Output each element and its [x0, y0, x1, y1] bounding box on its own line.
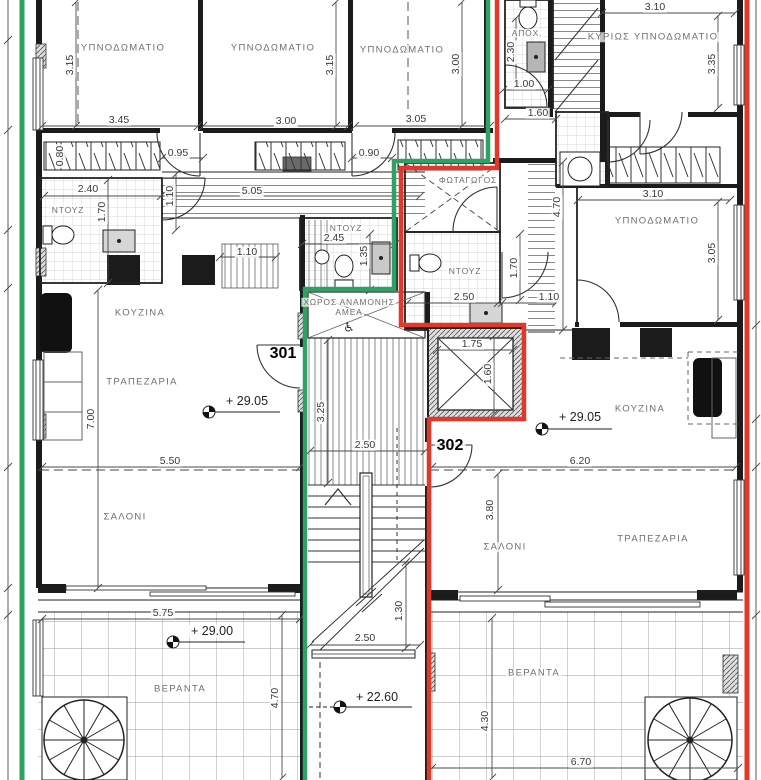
room-label-kitchen-2: ΚΟΥΖΙΝΑ — [613, 404, 667, 414]
level-label-22-60: + 22.60 — [354, 691, 400, 704]
room-label-wc: ΑΠΟΧ. — [510, 29, 544, 38]
room-label-waiting-area-amea: ΑΜΕΑ — [333, 308, 364, 317]
dim-label: 1.10 — [537, 292, 561, 303]
dim-label-vertical: 4.70 — [270, 686, 281, 710]
dim-label: 3.10 — [643, 2, 667, 13]
dim-label-vertical: 0.80 — [55, 144, 66, 168]
toilet-icon — [410, 255, 419, 271]
level-label-29-05-left: + 29.05 — [224, 395, 270, 408]
room-label-veranda-1: ΒΕΡΑΝΤΑ — [152, 684, 208, 694]
dim-label-vertical: 3.15 — [65, 53, 76, 77]
dim-label-vertical: 7.00 — [86, 407, 97, 431]
wheelchair-icon: ♿ — [343, 321, 355, 334]
room-label-shower-3: ΝΤΟΥΖ — [447, 267, 483, 276]
dim-label: 2.50 — [353, 440, 377, 451]
dim-label-vertical: 1.60 — [483, 362, 494, 386]
dim-label-vertical: 1.30 — [394, 599, 405, 623]
dim-label: 3.05 — [404, 114, 428, 125]
level-label-29-00: + 29.00 — [189, 625, 235, 638]
dim-label-vertical: 1.70 — [97, 200, 108, 224]
sink-icon — [315, 250, 329, 264]
dim-label-vertical: 4.30 — [480, 709, 491, 733]
room-label-light-well: ΦΩΤΑΓΩΓΟΣ — [437, 176, 499, 185]
dim-label: 2.50 — [353, 633, 377, 644]
dim-label: 5.75 — [151, 608, 175, 619]
dim-label: 0.90 — [357, 148, 381, 159]
room-label-bedroom-4: ΥΠΝΟΔΩΜΑΤΙΟ — [613, 216, 701, 226]
room-label-master-bedroom: ΚΥΡΙΩΣ ΥΠΝΟΔΩΜΑΤΙΟ — [586, 32, 721, 42]
toilet-icon — [335, 255, 353, 277]
level-label-29-05-right: + 29.05 — [557, 411, 603, 424]
unit-number-301: 301 — [268, 346, 299, 362]
level-marker-icon — [536, 423, 612, 435]
dim-label-vertical: 1.70 — [509, 256, 520, 280]
dim-label: 1.10 — [235, 247, 259, 258]
dim-label: 3.45 — [107, 115, 131, 126]
room-label-dining-1: ΤΡΑΠΕΖΑΡΙΑ — [104, 377, 179, 387]
dim-label: 2.45 — [322, 233, 346, 244]
dim-label-vertical: 1.35 — [359, 244, 370, 268]
toilet-icon — [43, 226, 52, 244]
floor-plan: ΥΠΝΟΔΩΜΑΤΙΟ ΥΠΝΟΔΩΜΑΤΙΟ ΥΠΝΟΔΩΜΑΤΙΟ ΚΥΡΙ… — [0, 0, 761, 780]
dim-label: 5.50 — [158, 456, 182, 467]
dim-label: 3.00 — [274, 116, 298, 127]
dim-label: 0.95 — [166, 148, 190, 159]
dim-label: 1.75 — [460, 339, 484, 350]
dim-label-vertical: 1.10 — [165, 184, 176, 208]
dim-label-vertical: 3.25 — [316, 400, 327, 424]
dim-label-vertical: 3.00 — [451, 52, 462, 76]
dim-label: 5.05 — [240, 186, 264, 197]
dim-label: 1.60 — [526, 108, 550, 119]
dim-label: 3.10 — [641, 189, 665, 200]
dim-label: 2.40 — [76, 184, 100, 195]
dim-label: 2.50 — [452, 292, 476, 303]
room-label-bedroom-3: ΥΠΝΟΔΩΜΑΤΙΟ — [358, 45, 446, 55]
room-label-bedroom-2: ΥΠΝΟΔΩΜΑΤΙΟ — [229, 43, 317, 53]
room-label-bedroom-1: ΥΠΝΟΔΩΜΑΤΙΟ — [79, 43, 167, 53]
dim-label: 1.00 — [512, 79, 536, 90]
dim-label-vertical: 3.35 — [707, 52, 718, 76]
room-label-shower-1: ΝΤΟΥΖ — [50, 206, 86, 215]
dim-label: 6.20 — [568, 456, 592, 467]
room-label-kitchen-1: ΚΟΥΖΙΝΑ — [113, 308, 167, 318]
dim-label: 6.70 — [569, 757, 593, 768]
room-label-living-2: ΣΑΛΟΝΙ — [481, 542, 528, 552]
level-marker-icon — [203, 406, 280, 418]
dim-label-vertical: 2.30 — [506, 40, 517, 64]
dim-label-vertical: 3.15 — [325, 53, 336, 77]
fridge-icon — [40, 293, 72, 353]
room-label-living-1: ΣΑΛΟΝΙ — [101, 512, 148, 522]
room-label-veranda-2: ΒΕΡΑΝΤΑ — [506, 668, 562, 678]
toilet-icon — [519, 7, 537, 29]
room-label-waiting-area: ΧΩΡΟΣ ΑΝΑΜΟΝΗΣ — [301, 298, 396, 307]
unit-number-302: 302 — [435, 438, 466, 454]
dim-label-vertical: 3.05 — [707, 241, 718, 265]
dim-label-vertical: 4.70 — [552, 195, 563, 219]
room-label-dining-2: ΤΡΑΠΕΖΑΡΙΑ — [615, 534, 690, 544]
fridge-icon — [693, 358, 722, 417]
dim-label-vertical: 3.80 — [485, 498, 496, 522]
